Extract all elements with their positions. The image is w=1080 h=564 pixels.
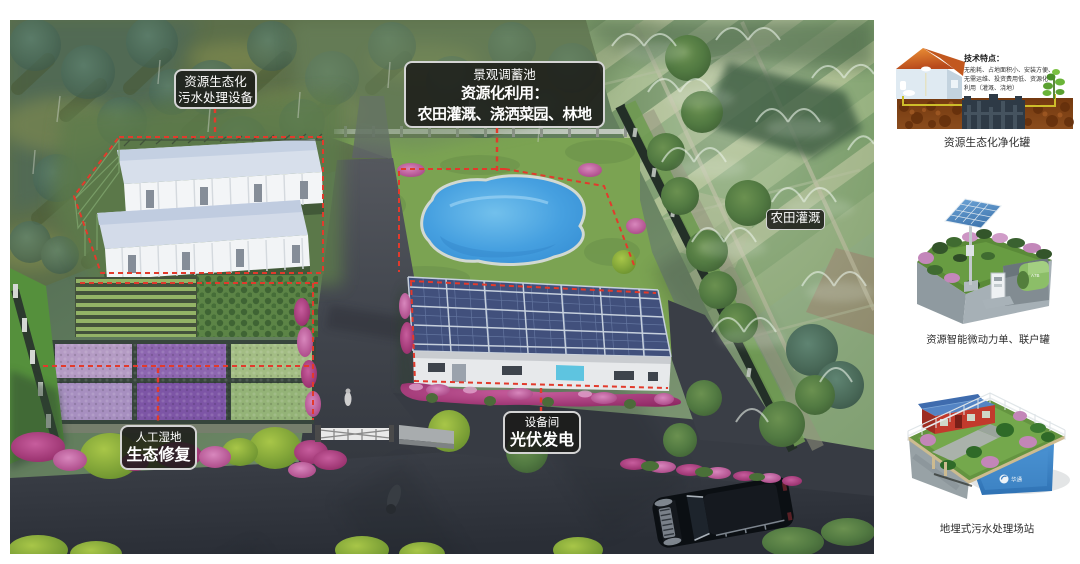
svg-text:华通: 华通 [1011,476,1023,484]
svg-text:技术特点：: 技术特点： [964,53,1004,63]
svg-text:A7B: A7B [1031,273,1040,278]
svg-text:资源生态化净化罐: 资源生态化净化罐 [944,135,1031,149]
svg-text:资源智能微动力单、联户罐: 资源智能微动力单、联户罐 [926,333,1050,346]
svg-text:无能耗、占地面积小、安装方便、: 无能耗、占地面积小、安装方便、 [964,66,1054,74]
svg-text:地埋式污水处理场站: 地埋式污水处理场站 [940,522,1035,535]
svg-text:无需运维、投资费用低、资源化: 无需运维、投资费用低、资源化 [964,75,1048,83]
svg-text:利用（灌溉、浇地）: 利用（灌溉、浇地） [964,84,1018,92]
